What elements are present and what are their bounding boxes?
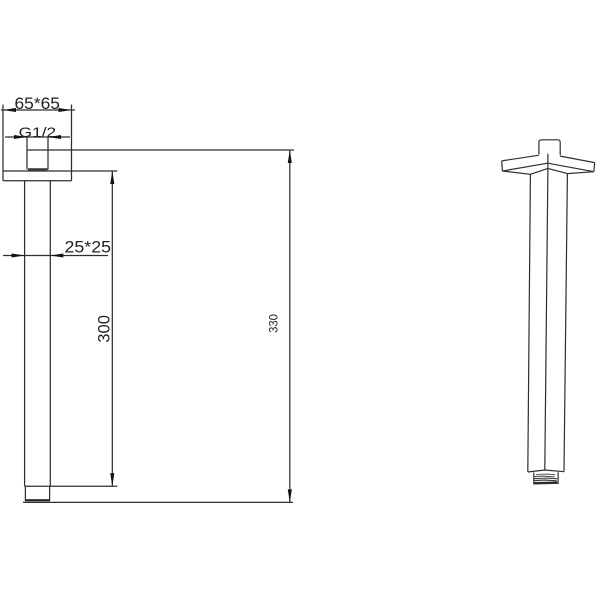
svg-text:300: 300 xyxy=(96,315,114,343)
svg-text:25*25: 25*25 xyxy=(65,239,112,257)
svg-text:330: 330 xyxy=(269,314,281,333)
svg-text:G1/2: G1/2 xyxy=(19,124,57,140)
svg-text:65*65: 65*65 xyxy=(15,95,61,113)
